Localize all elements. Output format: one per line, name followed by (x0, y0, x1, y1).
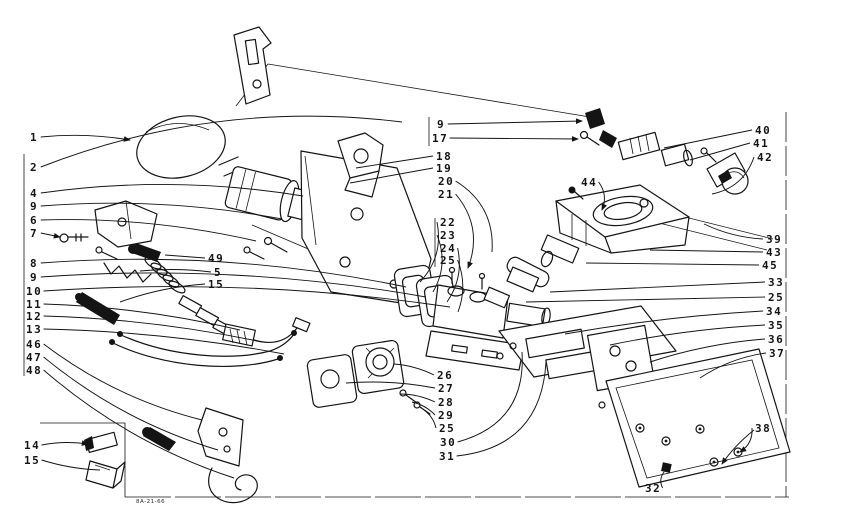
leader-29 (412, 402, 435, 415)
ferrule-cylinders (618, 132, 694, 166)
leader-5m (140, 269, 211, 272)
top-guide-line (268, 64, 596, 118)
part-label-10: 10 (26, 285, 42, 298)
leader-33 (550, 282, 765, 292)
part-label-46: 46 (26, 338, 42, 351)
part-label-45: 45 (762, 259, 778, 272)
gasket-plate (307, 354, 358, 408)
part-label-35: 35 (768, 319, 784, 332)
part-label-1: 1 (30, 131, 38, 144)
part-label-22: 22 (440, 216, 456, 229)
part-label-48: 48 (26, 364, 42, 377)
part-label-33: 33 (768, 276, 784, 289)
part-label-23: 23 (440, 229, 456, 242)
igniter-bulb (130, 107, 232, 187)
part-label-9t: 9 (437, 118, 445, 131)
leader-7 (41, 233, 60, 237)
part-label-31: 31 (439, 450, 455, 463)
lower-left-parts (84, 408, 257, 503)
part-label-38: 38 (755, 422, 771, 435)
nut-32 (661, 462, 672, 473)
hook-strap (209, 468, 258, 503)
part-label-25b: 25 (439, 422, 455, 435)
part-label-4: 4 (30, 187, 38, 200)
mount-screws-9-17 (581, 108, 618, 148)
part-label-2: 2 (30, 161, 38, 174)
parts-diagram-canvas: 8A-21-66 (0, 0, 848, 516)
part-label-37: 37 (769, 347, 785, 360)
support-bracket (198, 408, 243, 466)
left-small-parts (60, 201, 310, 366)
leader-41 (690, 143, 750, 160)
diagram-page: 8A-21-66 (0, 0, 848, 516)
part-label-30: 30 (440, 436, 456, 449)
part-label-17: 17 (432, 132, 448, 145)
drawing-code: 8A-21-66 (136, 499, 165, 505)
part-label-39: 39 (766, 233, 782, 246)
leader-21 (456, 194, 474, 268)
part-label-40: 40 (755, 124, 771, 137)
part-label-13: 13 (26, 323, 42, 336)
leader-25b (424, 410, 436, 428)
leader-49 (165, 255, 205, 258)
part-label-47: 47 (26, 351, 42, 364)
part-label-44: 44 (581, 176, 597, 189)
leader-9t (448, 121, 582, 124)
part-label-12: 12 (26, 310, 42, 323)
part-label-36: 36 (768, 333, 784, 346)
part-label-9b: 9 (30, 271, 38, 284)
part-label-19: 19 (436, 162, 452, 175)
leader-25r (526, 297, 765, 302)
terminal-15 (86, 461, 125, 488)
top-bracket-part (234, 27, 271, 104)
part-label-8: 8 (30, 257, 38, 270)
part-label-41: 41 (753, 137, 769, 150)
leader-47 (44, 357, 218, 450)
leader-40 (664, 130, 752, 148)
leader-46 (44, 344, 202, 420)
part-label-28: 28 (438, 396, 454, 409)
part-label-6: 6 (30, 214, 38, 227)
part-label-15m: 15 (208, 278, 224, 291)
leader-45 (586, 263, 759, 265)
inlet-port (541, 235, 579, 263)
leader-17 (450, 138, 578, 139)
part-label-14: 14 (24, 439, 40, 452)
part-label-49: 49 (208, 252, 224, 265)
part-label-21: 21 (438, 188, 454, 201)
part-label-7: 7 (30, 227, 38, 240)
solenoid-cylinder (507, 303, 545, 326)
part-label-15b: 15 (24, 454, 40, 467)
part-label-20: 20 (438, 175, 454, 188)
part-label-42: 42 (757, 151, 773, 164)
leader-43 (650, 250, 763, 252)
part-label-26: 26 (437, 369, 453, 382)
leader-14 (42, 442, 88, 445)
part-label-29: 29 (438, 409, 454, 422)
part-label-34: 34 (766, 305, 782, 318)
screw-7-head (60, 234, 68, 242)
part-label-43: 43 (766, 246, 782, 259)
part-label-25r: 25 (768, 291, 784, 304)
wires (109, 330, 297, 366)
leader-1 (41, 135, 130, 140)
part-label-27: 27 (438, 382, 454, 395)
terminal-14 (84, 432, 117, 452)
part-label-9a: 9 (30, 200, 38, 213)
part-label-32: 32 (645, 482, 661, 495)
solenoid-coil (223, 318, 310, 346)
part-label-25m: 25 (440, 254, 456, 267)
gas-valve-assembly (484, 108, 773, 308)
coil-can (366, 348, 394, 376)
